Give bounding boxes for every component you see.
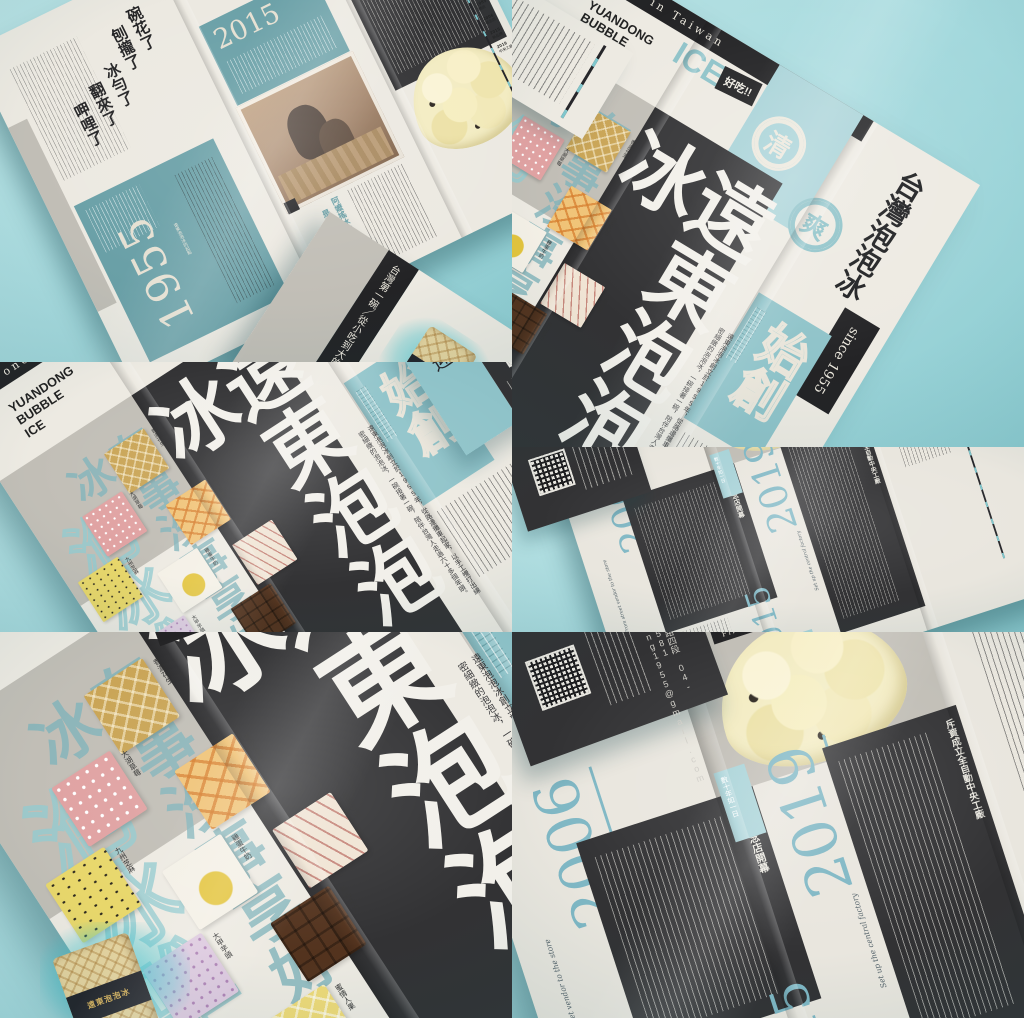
stamp-shuang-char: 爽 [795,202,836,247]
photo-tile-story-spread-far: First one in Taiwan 2006 From street ven… [512,447,1024,632]
photo-tile-cover-medium: 有事沒事享好冰 泡冰唯一支持 First one in Taiwan ICE Y… [0,362,512,632]
timeline-item: 2019中央工廠 [496,37,512,55]
timeline-item: 2015新品牌 [489,23,512,41]
photo-tile-cover-large: 有事沒事享好冰 泡冰唯一支持 First one in Taiwan ICE Y… [512,0,1024,447]
caption-2006: From street vendor to the store [537,918,589,1018]
qr-code [528,448,576,496]
micro-text [788,447,901,619]
mockup-collage: 碗花了 刨攏了 冰勻了 翻來了 呷哩了 1955 遠東泡泡冰的起點 2015 阿… [0,0,1024,1018]
photo-tile-cover-closeup: 有事沒事享好冰 泡冰唯一支持 First one in Taiwan ICE Y… [0,632,512,1018]
year-1955: 1955 [107,208,206,337]
timeline: 1955創立 1985開店 2006概念店 2015新品牌 2019中央工廠 [929,447,1024,558]
qr-code [525,644,592,711]
stamp-qing-char: 清 [758,121,799,166]
micro-text [838,732,1016,1018]
photo-tile-inner-spread: 碗花了 刨攏了 冰勻了 翻來了 呷哩了 1955 遠東泡泡冰的起點 2015 阿… [0,0,512,362]
ice-deco-word: ICE [81,362,146,368]
timeline-item: 2006概念店 [483,9,506,27]
cup-label: 遠東泡泡冰 [66,970,152,1018]
caption-2006: From street vendor to the store [598,547,631,632]
photo-tile-story-spread-close: First one in Taiwan 2006 From street ven… [512,632,1024,1018]
year-2015: 2015 [737,581,798,632]
micro-text-dark [175,156,277,303]
